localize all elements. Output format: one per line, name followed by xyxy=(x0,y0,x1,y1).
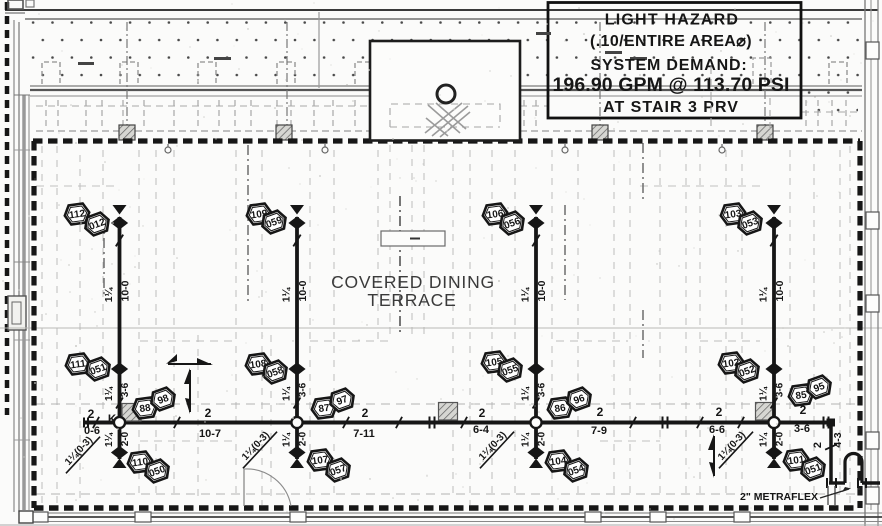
svg-text:1¼: 1¼ xyxy=(759,432,770,447)
svg-text:(.10/ENTIRE AREA⌀): (.10/ENTIRE AREA⌀) xyxy=(590,33,752,50)
svg-text:10-0: 10-0 xyxy=(536,280,548,301)
svg-text:2: 2 xyxy=(88,407,95,421)
svg-text:2-0: 2-0 xyxy=(298,431,309,446)
svg-text:111: 111 xyxy=(70,358,87,371)
svg-text:10-0: 10-0 xyxy=(774,280,786,301)
svg-text:3-6: 3-6 xyxy=(794,423,810,435)
svg-text:7-11: 7-11 xyxy=(353,428,374,440)
svg-text:10-0: 10-0 xyxy=(297,280,309,301)
svg-text:1¼: 1¼ xyxy=(281,286,293,302)
svg-text:3-6: 3-6 xyxy=(775,382,786,397)
svg-text:SYSTEM DEMAND:: SYSTEM DEMAND: xyxy=(591,57,748,74)
svg-text:TERRACE: TERRACE xyxy=(367,290,456,310)
svg-text:2: 2 xyxy=(812,442,824,448)
svg-text:1¼: 1¼ xyxy=(521,432,532,447)
svg-text:196.90 GPM @ 113.70 PSI: 196.90 GPM @ 113.70 PSI xyxy=(552,74,789,96)
svg-text:AT STAIR 3 PRV: AT STAIR 3 PRV xyxy=(603,99,739,116)
svg-text:86: 86 xyxy=(554,403,567,416)
svg-text:3-6: 3-6 xyxy=(298,382,309,397)
svg-text:1¼: 1¼ xyxy=(282,432,293,447)
svg-text:LIGHT HAZARD: LIGHT HAZARD xyxy=(605,12,739,29)
svg-text:1¼: 1¼ xyxy=(758,286,770,302)
svg-text:2-0: 2-0 xyxy=(537,431,548,446)
svg-text:6-4: 6-4 xyxy=(473,424,490,436)
svg-text:112: 112 xyxy=(68,208,86,221)
svg-text:1¼: 1¼ xyxy=(104,432,115,447)
svg-text:2-0: 2-0 xyxy=(120,431,131,446)
svg-text:2: 2 xyxy=(479,406,486,420)
svg-text:7-9: 7-9 xyxy=(591,425,607,437)
svg-text:3-6: 3-6 xyxy=(120,382,131,397)
svg-text:2: 2 xyxy=(205,406,212,420)
svg-text:1¼: 1¼ xyxy=(520,286,532,302)
svg-text:2: 2 xyxy=(716,405,723,419)
svg-text:1¼: 1¼ xyxy=(103,286,115,302)
svg-text:88: 88 xyxy=(139,403,152,416)
svg-text:4-3: 4-3 xyxy=(832,432,844,447)
svg-text:10-7: 10-7 xyxy=(199,428,221,440)
svg-text:87: 87 xyxy=(318,403,331,416)
svg-text:2-0: 2-0 xyxy=(775,431,786,446)
svg-text:3-6: 3-6 xyxy=(537,382,548,397)
svg-text:1¼: 1¼ xyxy=(521,386,532,401)
svg-text:COVERED DINING: COVERED DINING xyxy=(331,272,495,292)
svg-text:10-0: 10-0 xyxy=(120,280,132,301)
svg-text:2: 2 xyxy=(362,406,369,420)
svg-text:2" METRAFLEX: 2" METRAFLEX xyxy=(740,491,818,503)
svg-text:2: 2 xyxy=(597,405,604,419)
svg-text:1¼: 1¼ xyxy=(282,386,293,401)
svg-text:85: 85 xyxy=(795,390,808,403)
svg-text:1¼: 1¼ xyxy=(759,386,770,401)
svg-text:1¼: 1¼ xyxy=(104,386,115,401)
svg-text:6-6: 6-6 xyxy=(709,424,725,436)
